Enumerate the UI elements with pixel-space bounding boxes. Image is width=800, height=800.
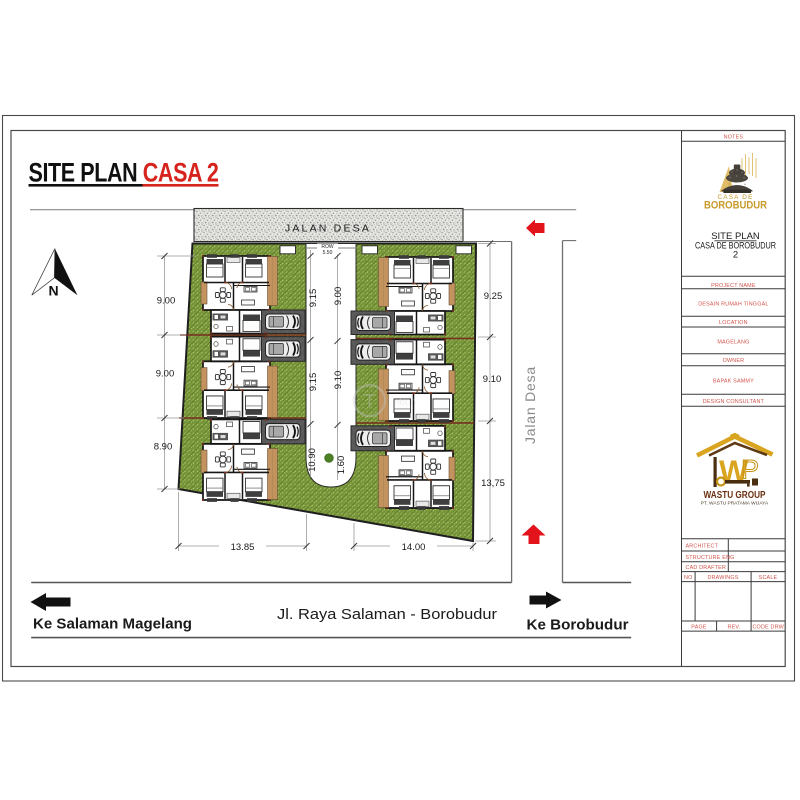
svg-text:PT. WASTU PRATAMA WIJAYA: PT. WASTU PRATAMA WIJAYA <box>701 501 769 507</box>
svg-text:ARCHITECT: ARCHITECT <box>686 544 719 550</box>
svg-text:14.00: 14.00 <box>402 542 426 553</box>
svg-text:9.15: 9.15 <box>308 289 319 308</box>
svg-text:PAGE: PAGE <box>691 624 707 630</box>
svg-text:9.00: 9.00 <box>157 296 176 307</box>
svg-text:DESIGN CONSULTANT: DESIGN CONSULTANT <box>703 399 765 405</box>
svg-text:N: N <box>49 283 59 299</box>
svg-text:WASTU GROUP: WASTU GROUP <box>704 490 766 501</box>
svg-text:9.00: 9.00 <box>333 287 344 306</box>
svg-text:Ke Borobudur: Ke Borobudur <box>527 618 629 634</box>
svg-text:SITE PLAN CASA 2: SITE PLAN CASA 2 <box>29 158 219 188</box>
svg-text:PROJECT NAME: PROJECT NAME <box>711 283 756 289</box>
svg-text:JALAN DESA: JALAN DESA <box>285 223 371 235</box>
svg-text:DESAIN RUMAH TINGGAL: DESAIN RUMAH TINGGAL <box>698 301 768 307</box>
svg-text:9.00: 9.00 <box>156 369 175 380</box>
svg-text:Jl. Raya Salaman - Borobudur: Jl. Raya Salaman - Borobudur <box>277 606 497 623</box>
svg-text:1.60: 1.60 <box>336 456 347 475</box>
svg-text:STRUCTURE ENG: STRUCTURE ENG <box>686 555 735 561</box>
svg-text:NO: NO <box>684 575 693 581</box>
svg-text:9.25: 9.25 <box>484 291 503 302</box>
svg-text:REV.: REV. <box>728 624 741 630</box>
svg-text:SCALE: SCALE <box>759 575 778 581</box>
svg-text:T: T <box>364 392 376 413</box>
svg-text:13,75: 13,75 <box>481 478 505 489</box>
svg-text:Ke Salaman Magelang: Ke Salaman Magelang <box>33 617 192 633</box>
svg-text:2: 2 <box>733 250 738 261</box>
svg-text:8.90: 8.90 <box>154 442 173 453</box>
svg-text:CODE DRW: CODE DRW <box>752 624 784 630</box>
svg-text:OWNER: OWNER <box>723 358 745 364</box>
svg-text:MAGELANG: MAGELANG <box>717 339 749 345</box>
svg-text:ribun: ribun <box>394 397 416 408</box>
svg-text:DRAWINGS: DRAWINGS <box>707 575 738 581</box>
svg-text:9.10: 9.10 <box>483 374 502 385</box>
svg-text:Jalan Desa: Jalan Desa <box>522 366 538 444</box>
svg-text:9.15: 9.15 <box>308 373 319 392</box>
svg-text:NOTES: NOTES <box>724 135 744 141</box>
svg-text:BAPAK SAMMY: BAPAK SAMMY <box>713 378 754 384</box>
svg-text:5.50: 5.50 <box>323 250 333 256</box>
svg-text:9.10: 9.10 <box>333 371 344 390</box>
svg-text:BOROBUDUR: BOROBUDUR <box>704 200 767 212</box>
svg-text:LOCATION: LOCATION <box>719 320 748 326</box>
svg-text:CAD DRAFTER: CAD DRAFTER <box>686 565 727 571</box>
svg-text:13.85: 13.85 <box>231 542 255 553</box>
svg-text:10.90: 10.90 <box>307 448 318 472</box>
